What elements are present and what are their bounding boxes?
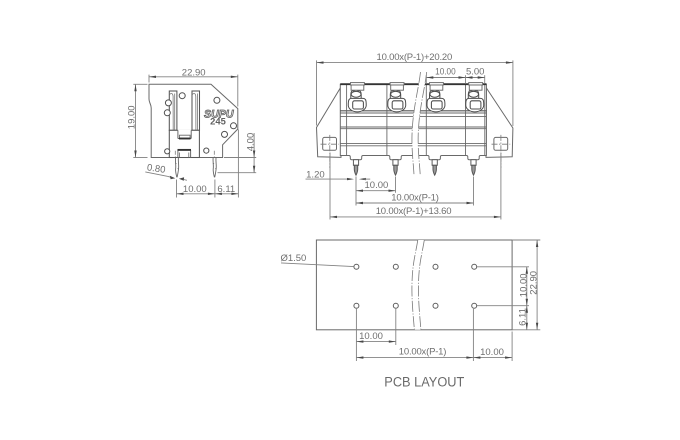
svg-text:22.90: 22.90 — [182, 67, 206, 78]
svg-text:10.00x(P-1)+20.20: 10.00x(P-1)+20.20 — [377, 52, 453, 63]
svg-text:PCB LAYOUT: PCB LAYOUT — [384, 374, 464, 389]
svg-text:4.00: 4.00 — [246, 133, 257, 152]
svg-text:10.00: 10.00 — [435, 66, 456, 77]
svg-text:19.00: 19.00 — [127, 105, 138, 129]
svg-text:Ø1.50: Ø1.50 — [280, 253, 306, 264]
svg-text:22.90: 22.90 — [529, 271, 540, 295]
svg-text:6.11: 6.11 — [518, 308, 529, 326]
svg-text:10.00: 10.00 — [480, 347, 504, 358]
svg-text:10.00x(P-1): 10.00x(P-1) — [391, 192, 438, 203]
svg-text:10.00x(P-1): 10.00x(P-1) — [399, 347, 446, 358]
svg-text:10.00: 10.00 — [359, 331, 383, 342]
svg-text:10.00: 10.00 — [365, 180, 389, 191]
svg-text:245: 245 — [210, 116, 226, 126]
svg-text:6.11: 6.11 — [217, 184, 235, 195]
svg-text:10.00: 10.00 — [183, 184, 207, 195]
svg-text:10.00x(P-1)+13.60: 10.00x(P-1)+13.60 — [376, 206, 452, 217]
svg-text:5.00: 5.00 — [466, 66, 485, 77]
